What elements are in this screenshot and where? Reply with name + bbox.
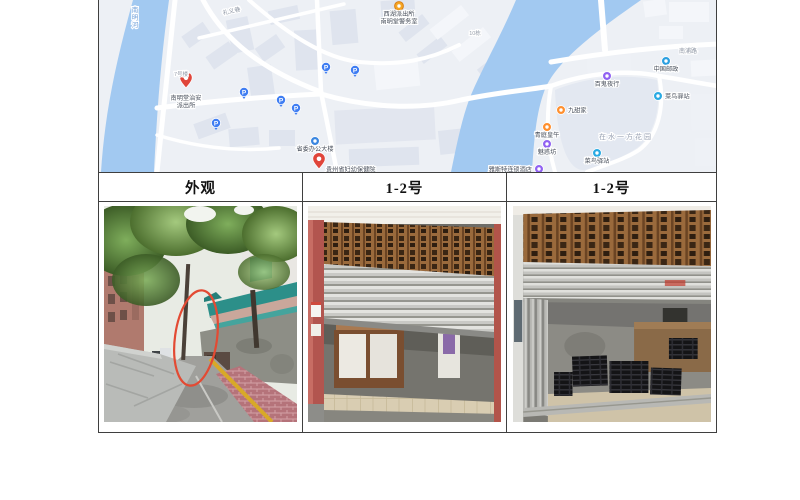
photo-shop-closed — [308, 206, 501, 422]
svg-text:南明堂警务室: 南明堂警务室 — [380, 18, 417, 26]
svg-text:7号楼: 7号楼 — [174, 70, 189, 78]
svg-text:P: P — [242, 89, 247, 96]
svg-text:P: P — [279, 97, 284, 104]
svg-text:雅斯特连锁酒店: 雅斯特连锁酒店 — [489, 165, 532, 172]
photo-shop-open — [513, 206, 711, 422]
svg-text:贵州省妇幼保健院: 贵州省妇幼保健院 — [326, 165, 376, 172]
survey-table: PPPPPP南明堂治安派出所西湖派出所南明堂警务室省委办公大楼贵州省妇幼保健院百… — [98, 0, 717, 433]
document-page: PPPPPP南明堂治安派出所西湖派出所南明堂警务室省委办公大楼贵州省妇幼保健院百… — [0, 0, 800, 500]
svg-text:P: P — [294, 105, 299, 112]
svg-text:省委办公大楼: 省委办公大楼 — [296, 145, 333, 153]
map-image: PPPPPP南明堂治安派出所西湖派出所南明堂警务室省委办公大楼贵州省妇幼保健院百… — [99, 0, 716, 172]
svg-text:百鬼夜行: 百鬼夜行 — [595, 80, 620, 88]
column-header-unit-1-2-b: 1-2号 — [506, 172, 716, 201]
right-column — [494, 224, 501, 422]
column-header-unit-1-2-a: 1-2号 — [302, 172, 506, 201]
folding-door — [523, 298, 548, 416]
red-marks — [664, 280, 685, 286]
photo-cell-unit-b — [506, 201, 716, 432]
svg-text:P: P — [214, 120, 219, 127]
photo-alley-exterior — [104, 206, 297, 422]
svg-text:P: P — [324, 64, 329, 71]
ceiling — [308, 206, 501, 224]
photo-cell-exterior — [99, 201, 302, 432]
svg-text:南明堂治安: 南明堂治安 — [171, 94, 202, 102]
svg-text:在水一方花园: 在水一方花园 — [599, 132, 653, 141]
svg-text:南明河: 南明河 — [132, 5, 139, 29]
column-header-exterior: 外观 — [99, 172, 302, 201]
left-column — [308, 220, 324, 422]
svg-text:西湖派出所: 西湖派出所 — [384, 10, 415, 18]
svg-text:魅惑坊: 魅惑坊 — [538, 148, 557, 156]
svg-text:南浦路: 南浦路 — [679, 47, 697, 55]
location-map: PPPPPP南明堂治安派出所西湖派出所南明堂警务室省委办公大楼贵州省妇幼保健院百… — [99, 0, 716, 172]
svg-text:派出所: 派出所 — [177, 102, 196, 110]
svg-text:青庭皇午: 青庭皇午 — [535, 131, 560, 139]
svg-text:P: P — [353, 67, 358, 74]
photo-cell-unit-a — [302, 201, 506, 432]
svg-text:菜鸟驿站: 菜鸟驿站 — [665, 92, 690, 100]
wood-lattice-band — [523, 210, 711, 268]
svg-text:10栋: 10栋 — [469, 29, 481, 37]
svg-text:中国邮政: 中国邮政 — [654, 65, 679, 73]
svg-text:菜鸟驿站: 菜鸟驿站 — [585, 157, 610, 165]
svg-text:九甜家: 九甜家 — [568, 106, 587, 114]
